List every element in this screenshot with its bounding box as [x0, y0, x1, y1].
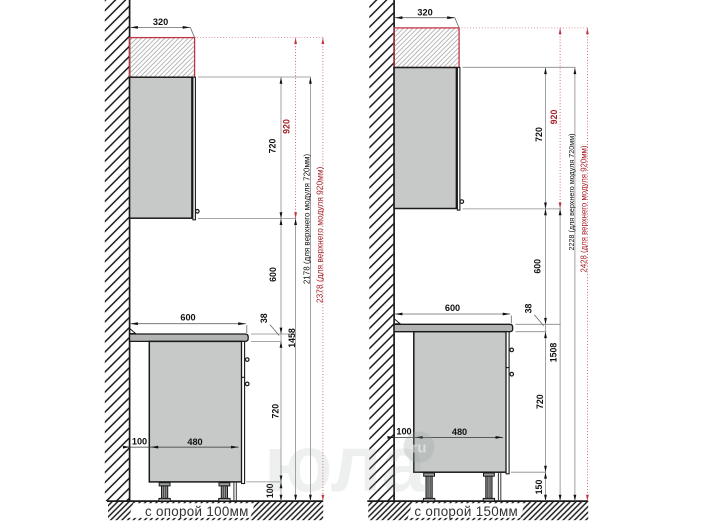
- svg-text:920: 920: [282, 119, 292, 134]
- svg-text:720: 720: [535, 394, 545, 409]
- svg-text:1458: 1458: [287, 328, 297, 348]
- svg-text:2228 (для верхнего модуля 720м: 2228 (для верхнего модуля 720мм): [567, 133, 576, 250]
- svg-text:920: 920: [549, 110, 559, 125]
- svg-text:с опорой 100мм: с опорой 100мм: [145, 504, 249, 519]
- svg-text:38: 38: [259, 313, 269, 323]
- svg-text:2428 (для верхнего модуля 920м: 2428 (для верхнего модуля 920мм): [580, 145, 589, 272]
- svg-text:ru: ru: [412, 440, 427, 457]
- svg-text:720: 720: [271, 404, 281, 419]
- svg-text:юла: юла: [264, 419, 426, 508]
- svg-text:с опорой 150мм: с опорой 150мм: [414, 504, 518, 519]
- svg-text:600: 600: [180, 313, 195, 323]
- svg-text:720: 720: [534, 127, 544, 142]
- svg-text:38: 38: [524, 304, 534, 314]
- svg-text:720: 720: [268, 139, 278, 154]
- svg-text:600: 600: [268, 267, 278, 282]
- svg-text:1508: 1508: [548, 343, 558, 363]
- svg-text:480: 480: [187, 437, 202, 447]
- svg-text:100: 100: [132, 436, 147, 446]
- svg-text:320: 320: [417, 7, 432, 17]
- svg-text:2178 (для верхнего модуля 720м: 2178 (для верхнего модуля 720мм): [303, 154, 312, 285]
- svg-text:2378 (для верхнего модуля 920м: 2378 (для верхнего модуля 920мм): [315, 166, 325, 303]
- svg-text:320: 320: [153, 17, 168, 27]
- svg-text:150: 150: [534, 480, 544, 495]
- svg-text:480: 480: [452, 427, 467, 437]
- svg-text:600: 600: [532, 259, 542, 274]
- svg-text:600: 600: [445, 303, 460, 313]
